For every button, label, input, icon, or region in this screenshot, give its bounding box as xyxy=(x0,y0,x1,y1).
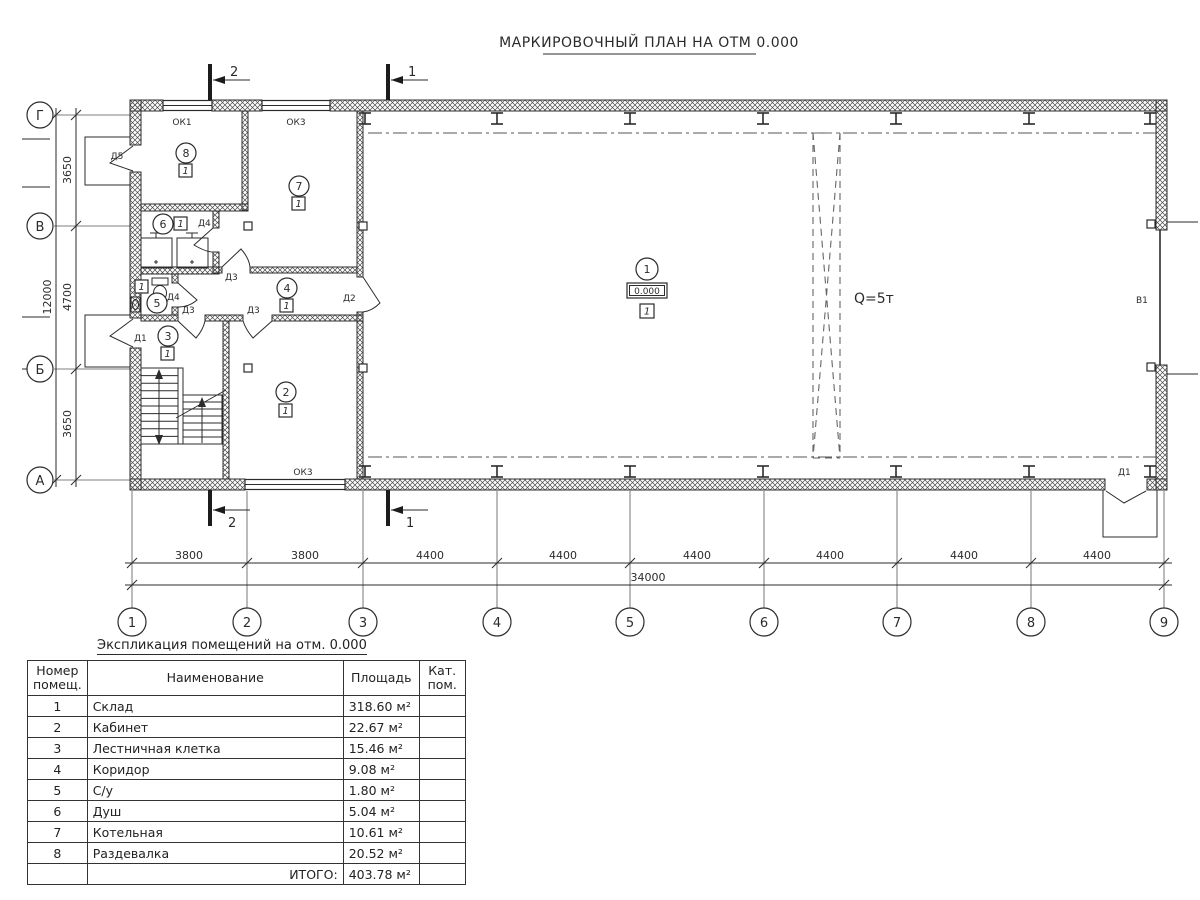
door-label: Д1 xyxy=(1118,468,1131,478)
table-row: 6 Душ 5.04 м² xyxy=(28,801,466,822)
wall xyxy=(141,204,248,211)
section-bar xyxy=(208,490,212,526)
section-number: 1 xyxy=(406,516,414,531)
door-label: Д3 xyxy=(225,273,238,283)
gate: В1 xyxy=(1136,220,1198,374)
wall xyxy=(130,479,245,490)
arrow-up-icon xyxy=(155,369,163,379)
door-label: Д2 xyxy=(343,294,356,304)
wall xyxy=(250,267,357,273)
type-marker: 1 xyxy=(644,307,650,318)
type-marker: 1 xyxy=(283,301,289,312)
dim-value: 4400 xyxy=(416,549,444,562)
table-row: 5 С/у 1.80 м² xyxy=(28,780,466,801)
room-name: С/у xyxy=(87,780,343,801)
porch-outline xyxy=(85,315,130,367)
room-category xyxy=(419,717,465,738)
room-category xyxy=(419,738,465,759)
room-id: 3 xyxy=(28,738,88,759)
wall xyxy=(242,111,248,210)
axis-label: 2 xyxy=(243,616,251,631)
room-area: 10.61 м² xyxy=(343,822,419,843)
toilet-tank-icon xyxy=(152,278,168,285)
dim-value: 4400 xyxy=(683,549,711,562)
door-label: Д4 xyxy=(167,293,180,303)
wall xyxy=(330,100,1167,111)
doors: Д5 Д1 Д4 Д4 Д3 Д3 Д3 Д2 Д1 xyxy=(110,146,1146,503)
wall xyxy=(223,321,229,479)
dim-value: 4400 xyxy=(950,549,978,562)
section-number: 2 xyxy=(228,516,236,531)
door-d1-left-leaf xyxy=(110,319,133,347)
type-marker: 1 xyxy=(138,282,144,293)
type-marker: 1 xyxy=(182,166,188,177)
room-id: 8 xyxy=(28,843,88,864)
wall xyxy=(219,267,222,273)
room-area: 318.60 м² xyxy=(343,696,419,717)
wall xyxy=(1156,100,1167,230)
door-d3-stairs xyxy=(178,321,205,338)
axis-label: 3 xyxy=(359,616,367,631)
door-label: Д4 xyxy=(198,219,211,229)
elevation-value: 0.000 xyxy=(634,287,660,297)
column-icon xyxy=(359,364,367,372)
dim-value: 4400 xyxy=(549,549,577,562)
room-number: 2 xyxy=(283,386,290,399)
room-number: 5 xyxy=(154,297,161,310)
empty-cell xyxy=(419,864,465,885)
axis-label: В xyxy=(36,220,45,235)
room-area: 5.04 м² xyxy=(343,801,419,822)
type-marker: 1 xyxy=(164,349,170,360)
axis-label: А xyxy=(36,474,45,489)
axis-label: 9 xyxy=(1160,616,1168,631)
door-d3-boiler xyxy=(222,249,250,267)
axis-label: Б xyxy=(36,363,45,378)
column-icon xyxy=(244,364,252,372)
type-marker: 1 xyxy=(282,406,288,417)
axis-label: 7 xyxy=(893,616,901,631)
generated-geometry xyxy=(51,110,1169,608)
door-label: Д1 xyxy=(134,334,147,344)
shower-tap-icon xyxy=(150,233,198,238)
wall xyxy=(212,100,262,111)
room-area: 15.46 м² xyxy=(343,738,419,759)
table-row: 8 Раздевалка 20.52 м² xyxy=(28,843,466,864)
room-name: Душ xyxy=(87,801,343,822)
room-category xyxy=(419,822,465,843)
shower-drain-icon xyxy=(154,260,194,264)
window-label: ОК1 xyxy=(172,118,191,128)
wall xyxy=(357,312,363,479)
room-name: Коридор xyxy=(87,759,343,780)
section-number: 1 xyxy=(408,65,416,80)
porch-outline xyxy=(1103,490,1157,537)
table-row: 1 Склад 318.60 м² xyxy=(28,696,466,717)
room-category xyxy=(419,759,465,780)
room-id: 4 xyxy=(28,759,88,780)
gate-jamb xyxy=(1147,363,1155,371)
room-number: 8 xyxy=(183,147,190,160)
wall xyxy=(272,315,363,321)
room-name: Лестничная клетка xyxy=(87,738,343,759)
col-header-number: Номерпомещ. xyxy=(28,661,88,696)
room-name: Склад xyxy=(87,696,343,717)
dim-value: 4400 xyxy=(816,549,844,562)
table-row: 4 Коридор 9.08 м² xyxy=(28,759,466,780)
room-id: 1 xyxy=(28,696,88,717)
crane-bridge xyxy=(813,133,840,458)
table-title: Экспликация помещений на отм. 0.000 xyxy=(97,638,367,655)
room-category xyxy=(419,843,465,864)
column-icon xyxy=(359,222,367,230)
axis-label: 4 xyxy=(493,616,501,631)
door-d4-shower xyxy=(194,228,213,252)
col-header-category: Кат.пом. xyxy=(419,661,465,696)
table-row: 7 Котельная 10.61 м² xyxy=(28,822,466,843)
wall xyxy=(345,479,1105,490)
room-category xyxy=(419,801,465,822)
room-category xyxy=(419,696,465,717)
wall xyxy=(130,348,141,490)
room-name: Кабинет xyxy=(87,717,343,738)
room-area: 22.67 м² xyxy=(343,717,419,738)
room-id: 2 xyxy=(28,717,88,738)
door-d1-right-leaf xyxy=(1106,491,1146,503)
room-id: 6 xyxy=(28,801,88,822)
dim-value: 3800 xyxy=(291,549,319,562)
axis-label: 8 xyxy=(1027,616,1035,631)
room-number: 3 xyxy=(165,330,172,343)
room-area: 20.52 м² xyxy=(343,843,419,864)
dim-value: 3650 xyxy=(61,410,74,438)
gate-jamb xyxy=(1147,220,1155,228)
col-header-name: Наименование xyxy=(87,661,343,696)
section-bar xyxy=(208,64,212,100)
section-arrow-icon xyxy=(391,76,403,84)
door-d4-wc xyxy=(178,283,197,307)
dim-value: 3800 xyxy=(175,549,203,562)
section-arrow-icon xyxy=(213,506,225,514)
total-area: 403.78 м² xyxy=(343,864,419,885)
wall xyxy=(172,274,178,283)
col-header-area: Площадь xyxy=(343,661,419,696)
room-id: 7 xyxy=(28,822,88,843)
dim-value: 3650 xyxy=(61,156,74,184)
wall xyxy=(130,172,141,318)
wall xyxy=(130,100,141,145)
room-area: 9.08 м² xyxy=(343,759,419,780)
dim-value: 4700 xyxy=(61,283,74,311)
door-d3-office xyxy=(243,321,272,338)
type-marker: 1 xyxy=(295,199,301,210)
explication-table: Номерпомещ. Наименование Площадь Кат.пом… xyxy=(27,660,466,885)
door-label: Д3 xyxy=(247,306,260,316)
axis-label: 5 xyxy=(626,616,634,631)
section-arrow-icon xyxy=(213,76,225,84)
type-marker: 1 xyxy=(177,219,183,230)
room-name: Раздевалка xyxy=(87,843,343,864)
table-row: 3 Лестничная клетка 15.46 м² xyxy=(28,738,466,759)
window-label: ОК3 xyxy=(293,468,312,478)
section-arrow-icon xyxy=(391,506,403,514)
porches xyxy=(22,137,1157,537)
wall xyxy=(141,315,178,321)
wall xyxy=(213,211,219,228)
wall xyxy=(172,307,178,315)
room-number: 4 xyxy=(284,282,291,295)
door-label: Д3 xyxy=(182,306,195,316)
room-id: 5 xyxy=(28,780,88,801)
gate-label: В1 xyxy=(1136,296,1148,306)
room-number: 6 xyxy=(160,218,167,231)
dim-value: 4400 xyxy=(1083,549,1111,562)
section-number: 2 xyxy=(230,65,238,80)
crane: Q=5т xyxy=(368,133,1156,458)
wall xyxy=(357,111,363,277)
door-label: Д5 xyxy=(111,152,124,162)
wall xyxy=(205,315,243,321)
table-header-row: Номерпомещ. Наименование Площадь Кат.пом… xyxy=(28,661,466,696)
stair-rail xyxy=(178,368,183,444)
room-category xyxy=(419,780,465,801)
wall xyxy=(1156,365,1167,490)
room-name: Котельная xyxy=(87,822,343,843)
section-bar xyxy=(386,490,390,526)
empty-cell xyxy=(28,864,88,885)
axis-label: 1 xyxy=(128,616,136,631)
axis-label: 6 xyxy=(760,616,768,631)
total-label: ИТОГО: xyxy=(87,864,343,885)
section-marks: 2 1 2 1 xyxy=(208,64,428,531)
room-markers: 1 0.000 1 2 1 3 1 4 1 5 1 6 1 7 1 xyxy=(135,143,667,417)
table-row: 2 Кабинет 22.67 м² xyxy=(28,717,466,738)
floor-plan: ОК1 ОК3 ОК3 В1 Д5 Д1 Д4 Д4 Д3 xyxy=(0,0,1200,640)
crane-capacity-label: Q=5т xyxy=(854,291,894,307)
window-label: ОК3 xyxy=(286,118,305,128)
room-number: 7 xyxy=(296,180,303,193)
dim-total: 12000 xyxy=(41,280,54,315)
table-total-row: ИТОГО: 403.78 м² xyxy=(28,864,466,885)
door-d2 xyxy=(363,277,380,312)
dim-total: 34000 xyxy=(631,571,666,584)
section-bar xyxy=(386,64,390,100)
drawing-sheet: ОК1 ОК3 ОК3 В1 Д5 Д1 Д4 Д4 Д3 xyxy=(0,0,1200,900)
room-number: 1 xyxy=(644,263,651,276)
room-area: 1.80 м² xyxy=(343,780,419,801)
column-icon xyxy=(244,222,252,230)
page-title: МАРКИРОВОЧНЫЙ ПЛАН НА ОТМ 0.000 xyxy=(499,33,799,51)
axis-label: Г xyxy=(36,109,44,124)
